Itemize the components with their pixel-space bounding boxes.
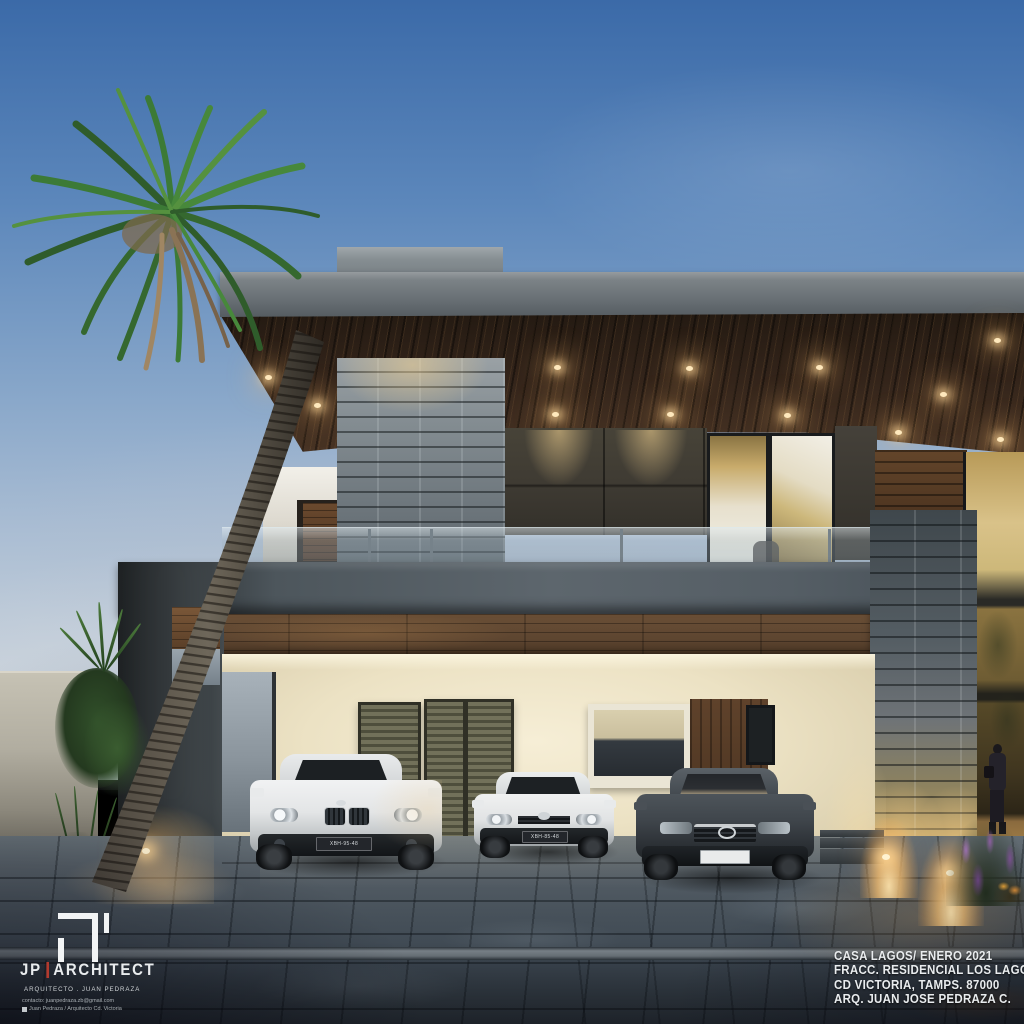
glass-reflection: [978, 610, 1018, 680]
person-legs: [990, 790, 1004, 822]
sedan-mirror: [803, 802, 816, 810]
recessed-light: [552, 412, 559, 417]
white-hatchback: XBH-85-48: [474, 770, 614, 862]
orange-flowers: [994, 876, 1024, 902]
hatchback-wheel: [480, 836, 510, 858]
recessed-light: [784, 413, 791, 418]
sedan-headlight: [758, 822, 790, 834]
column-light-pool: [337, 358, 505, 448]
balustrade-post: [368, 529, 371, 565]
hatchback-mirror: [604, 800, 616, 808]
logo-monogram-stub: [58, 938, 64, 962]
sedan-mirror: [634, 802, 647, 810]
facebook-icon: [22, 1007, 27, 1012]
architect-logo-block: JP ARCHITECT ARQUITECTO . JUAN PEDRAZA c…: [18, 900, 218, 1018]
brand-tagline: ARQUITECTO . JUAN PEDRAZA: [24, 986, 140, 993]
logo-monogram-tick: [104, 913, 109, 933]
suv-warm-reflection: [370, 780, 442, 852]
sedan-wheel: [772, 854, 806, 880]
balustrade-post: [620, 529, 623, 565]
door-stile: [463, 699, 468, 843]
logo-monogram-stem: [92, 913, 98, 962]
contact-email: contacto: juanpedraza.zb@gmail.com: [22, 998, 114, 1004]
uplight-fixture: [882, 854, 890, 860]
brand-name: JP ARCHITECT: [20, 960, 156, 980]
hatchback-headlight: [486, 814, 512, 825]
sedan-badge: [718, 826, 736, 839]
dark-sedan: [636, 766, 814, 884]
cloud: [520, 60, 1024, 280]
balustrade-post: [430, 529, 433, 565]
sedan-license-plate: [700, 850, 750, 864]
hatchback-mirror: [472, 800, 484, 808]
recessed-light: [816, 365, 823, 370]
recessed-light: [997, 437, 1004, 442]
small-dark-window: [746, 705, 775, 765]
wall-wash-light: [515, 430, 603, 530]
vw-badge: [538, 812, 550, 820]
recessed-light: [667, 412, 674, 417]
recessed-light: [554, 365, 561, 370]
recessed-light: [994, 338, 1001, 343]
project-line-3: CD VICTORIA, TAMPS. 87000: [834, 978, 1009, 992]
recessed-light: [940, 392, 947, 397]
recessed-light: [895, 430, 902, 435]
balustrade-post: [828, 529, 831, 565]
palm-tree: [0, 30, 360, 910]
glass-reflection: [990, 690, 1024, 750]
sedan-headlight: [660, 822, 692, 834]
recessed-light: [686, 366, 693, 371]
brand-architect: ARCHITECT: [53, 960, 155, 980]
contact-social: Juan Pedraza / Arquitecto Cd. Victoria: [22, 1006, 122, 1012]
hatchback-wheel: [578, 836, 608, 858]
brand-divider: [46, 962, 49, 978]
architectural-rendering: XBH-95-48 XBH-85-48: [0, 0, 1024, 1024]
palm-trunk-rings: [92, 330, 324, 892]
sedan-wheel: [644, 854, 678, 880]
hatchback-headlight: [576, 814, 602, 825]
handbag: [984, 766, 994, 778]
project-line-2: FRACC. RESIDENCIAL LOS LAGOS: [834, 963, 1009, 977]
contact-social-text: Juan Pedraza / Arquitecto Cd. Victoria: [29, 1006, 122, 1012]
hatchback-license-plate: XBH-85-48: [522, 831, 568, 843]
brand-jp: JP: [20, 960, 42, 980]
project-line-1: CASA LAGOS/ ENERO 2021: [834, 949, 1009, 963]
project-title-block: CASA LAGOS/ ENERO 2021 FRACC. RESIDENCIA…: [834, 949, 1009, 1006]
project-line-4: ARQ. JUAN JOSE PEDRAZA C.: [834, 992, 1009, 1006]
wall-wash-light: [605, 430, 697, 530]
